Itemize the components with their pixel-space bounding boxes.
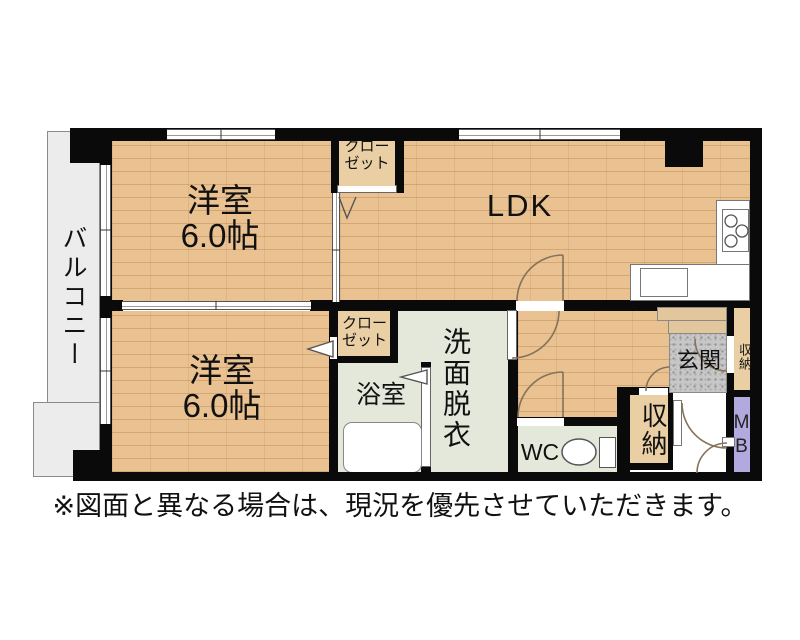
washroom-door-leaf bbox=[507, 310, 517, 360]
shoe-cabinet-upper bbox=[657, 307, 727, 321]
window-western1-top bbox=[167, 129, 275, 140]
wall-western2-east bbox=[329, 311, 338, 473]
bath-label: 浴室 bbox=[339, 382, 423, 408]
sliding-door-western1-ldk bbox=[332, 193, 340, 302]
wall-closet-mid-east bbox=[389, 303, 398, 362]
corner-block-bottom-left bbox=[73, 450, 112, 481]
closet-top-label: クローゼット bbox=[340, 139, 394, 173]
corner-block-top-left bbox=[70, 128, 112, 163]
toilet-tank bbox=[599, 437, 616, 468]
balcony-label: バルコニー bbox=[56, 215, 86, 380]
window-western2-left bbox=[100, 318, 111, 424]
wall-outer-bottom bbox=[100, 472, 762, 481]
sliding-partition-rooms bbox=[122, 301, 311, 310]
western-room-2-name: 洋室 bbox=[147, 354, 297, 389]
closet-top-door bbox=[337, 185, 397, 193]
western-room-1-label: 洋室 6.0帖 bbox=[145, 184, 295, 253]
western-room-2-label: 洋室 6.0帖 bbox=[147, 354, 297, 423]
western-room-2-size: 6.0帖 bbox=[147, 389, 297, 424]
bathtub bbox=[343, 422, 422, 473]
ldk-label: LDK bbox=[465, 190, 575, 223]
wc-label: WC bbox=[516, 440, 564, 464]
window-ldk-top bbox=[459, 129, 620, 140]
washroom-label: 洗面脱衣 bbox=[438, 316, 470, 461]
wall-bath-north bbox=[337, 355, 398, 363]
storage-hall-label: 収納 bbox=[633, 398, 666, 462]
entrance-label: 玄関 bbox=[671, 349, 727, 372]
disclaimer-text: ※図面と異なる場合は、現況を優先させていただきます。 bbox=[0, 492, 800, 520]
wall-mb-north bbox=[726, 390, 752, 397]
front-door-leaf bbox=[673, 400, 682, 446]
pillar-ldk bbox=[665, 141, 703, 167]
wc-door-opening bbox=[517, 418, 564, 426]
storage-entrance-door-opening bbox=[726, 336, 734, 373]
shoe-cabinet-lower bbox=[668, 320, 727, 334]
kitchen-sink bbox=[640, 268, 688, 297]
door-opening-ldk bbox=[516, 301, 564, 311]
wall-room-divider-mid bbox=[310, 300, 518, 311]
western-room-1-size: 6.0帖 bbox=[145, 219, 295, 254]
storage-entrance-label: 収納 bbox=[736, 340, 751, 374]
floor-plan: バルコニー 洋室 6.0帖 洋室 6.0帖 LDK クローゼット クローゼット … bbox=[0, 0, 800, 640]
meter-box-label: MB bbox=[736, 411, 751, 461]
closet-mid-door-opening bbox=[330, 337, 337, 359]
western-room-1-name: 洋室 bbox=[145, 184, 295, 219]
closet-mid-label: クローゼット bbox=[339, 316, 390, 350]
stove bbox=[722, 209, 749, 252]
window-western1-left bbox=[100, 165, 111, 296]
